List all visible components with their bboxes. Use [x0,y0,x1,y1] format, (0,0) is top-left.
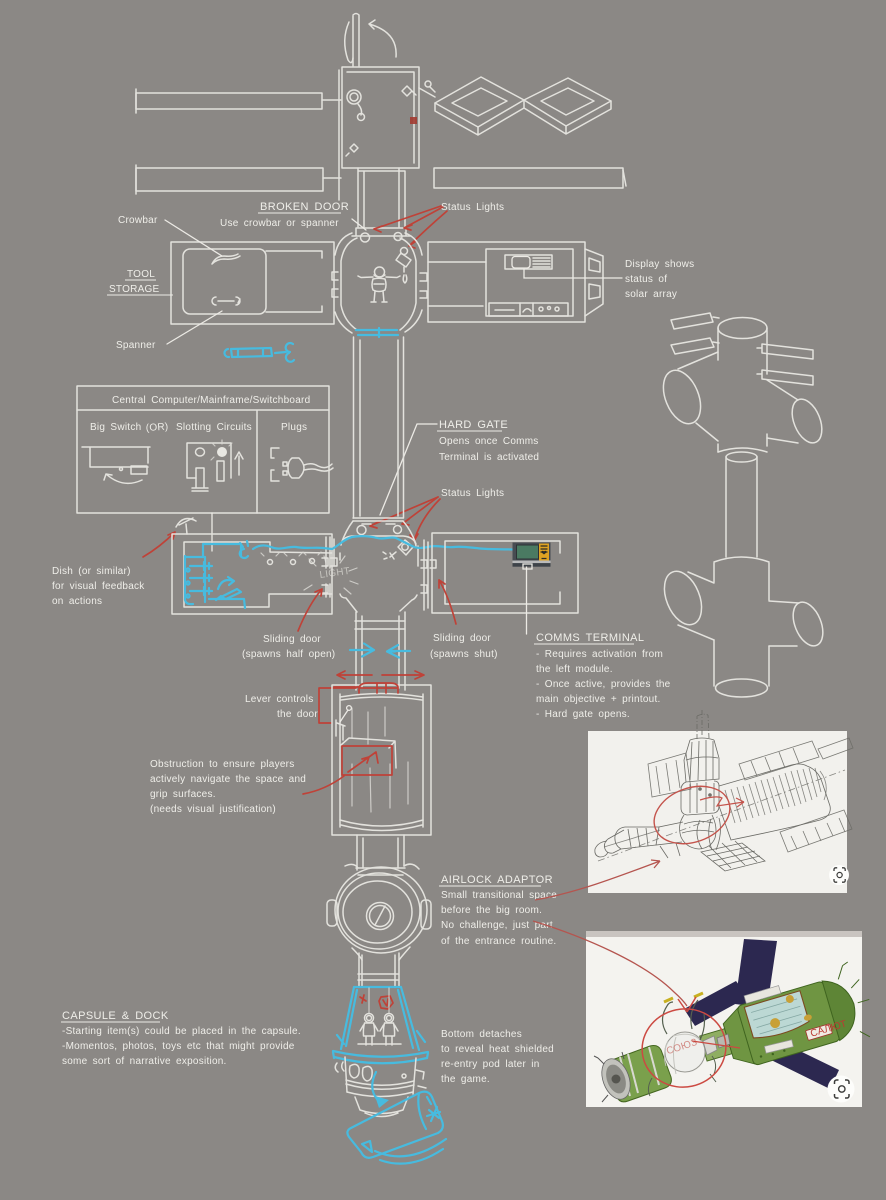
svg-text:Use crowbar or spanner: Use crowbar or spanner [220,218,339,229]
svg-text:- Requires activation from: - Requires activation from [536,649,663,660]
svg-text:Status Lights: Status Lights [441,202,504,213]
svg-text:for visual feedback: for visual feedback [52,581,145,592]
svg-text:Slotting Circuits: Slotting Circuits [176,422,252,433]
svg-text:the left module.: the left module. [536,664,613,675]
svg-text:Status Lights: Status Lights [441,488,504,499]
svg-text:Obstruction to ensure players: Obstruction to ensure players [150,759,294,770]
svg-text:(OR): (OR) [145,421,168,434]
svg-text:BROKEN DOOR: BROKEN DOOR [260,201,349,213]
svg-text:Plugs: Plugs [281,422,307,433]
svg-text:STORAGE: STORAGE [109,284,160,295]
svg-text:(spawns shut): (spawns shut) [430,649,498,660]
svg-text:the game.: the game. [441,1074,490,1085]
svg-text:(needs visual justification): (needs visual justification) [150,804,276,815]
svg-text:- Once active, provides the: - Once active, provides the [536,679,671,690]
svg-text:before the big room.: before the big room. [441,905,542,916]
svg-text:Bottom detaches: Bottom detaches [441,1029,522,1040]
svg-text:TOOL: TOOL [127,269,155,280]
svg-text:on actions: on actions [52,596,102,607]
svg-text:Big Switch: Big Switch [90,422,141,433]
svg-text:Dish (or similar): Dish (or similar) [52,566,131,577]
svg-text:Central Computer/Mainframe/Swi: Central Computer/Mainframe/Switchboard [112,395,310,406]
svg-text:-Momentos, photos, toys etc th: -Momentos, photos, toys etc that might p… [62,1041,295,1052]
svg-text:Opens once Comms: Opens once Comms [439,436,539,447]
svg-text:some sort of narrative exposit: some sort of narrative exposition. [62,1056,227,1067]
svg-text:- Hard gate opens.: - Hard gate opens. [536,709,630,720]
svg-text:AIRLOCK ADAPTOR: AIRLOCK ADAPTOR [441,874,553,886]
svg-text:Crowbar: Crowbar [118,215,158,226]
svg-text:CAPSULE & DOCK: CAPSULE & DOCK [62,1010,169,1022]
svg-text:COMMS TERMINAL: COMMS TERMINAL [536,632,644,644]
svg-text:solar array: solar array [625,289,677,300]
svg-text:-Starting item(s) could be pla: -Starting item(s) could be placed in the… [62,1026,301,1037]
svg-text:Sliding door: Sliding door [433,633,491,644]
svg-text:(spawns half open): (spawns half open) [242,649,335,660]
svg-text:HARD GATE: HARD GATE [439,419,508,431]
svg-text:to reveal heat shielded: to reveal heat shielded [441,1044,554,1055]
svg-text:of the entrance routine.: of the entrance routine. [441,936,556,947]
svg-text:Spanner: Spanner [116,340,156,351]
svg-text:status of: status of [625,274,667,285]
svg-text:Terminal is activated: Terminal is activated [439,452,539,463]
svg-text:the door: the door [277,709,318,720]
svg-text:grip surfaces.: grip surfaces. [150,789,216,800]
svg-text:actively navigate the space an: actively navigate the space and [150,774,306,785]
svg-text:Lever controls: Lever controls [245,694,314,705]
svg-text:main objective + printout.: main objective + printout. [536,694,661,705]
svg-text:Display shows: Display shows [625,259,694,270]
svg-text:Sliding door: Sliding door [263,634,321,645]
svg-text:re-entry pod later in: re-entry pod later in [441,1059,540,1070]
